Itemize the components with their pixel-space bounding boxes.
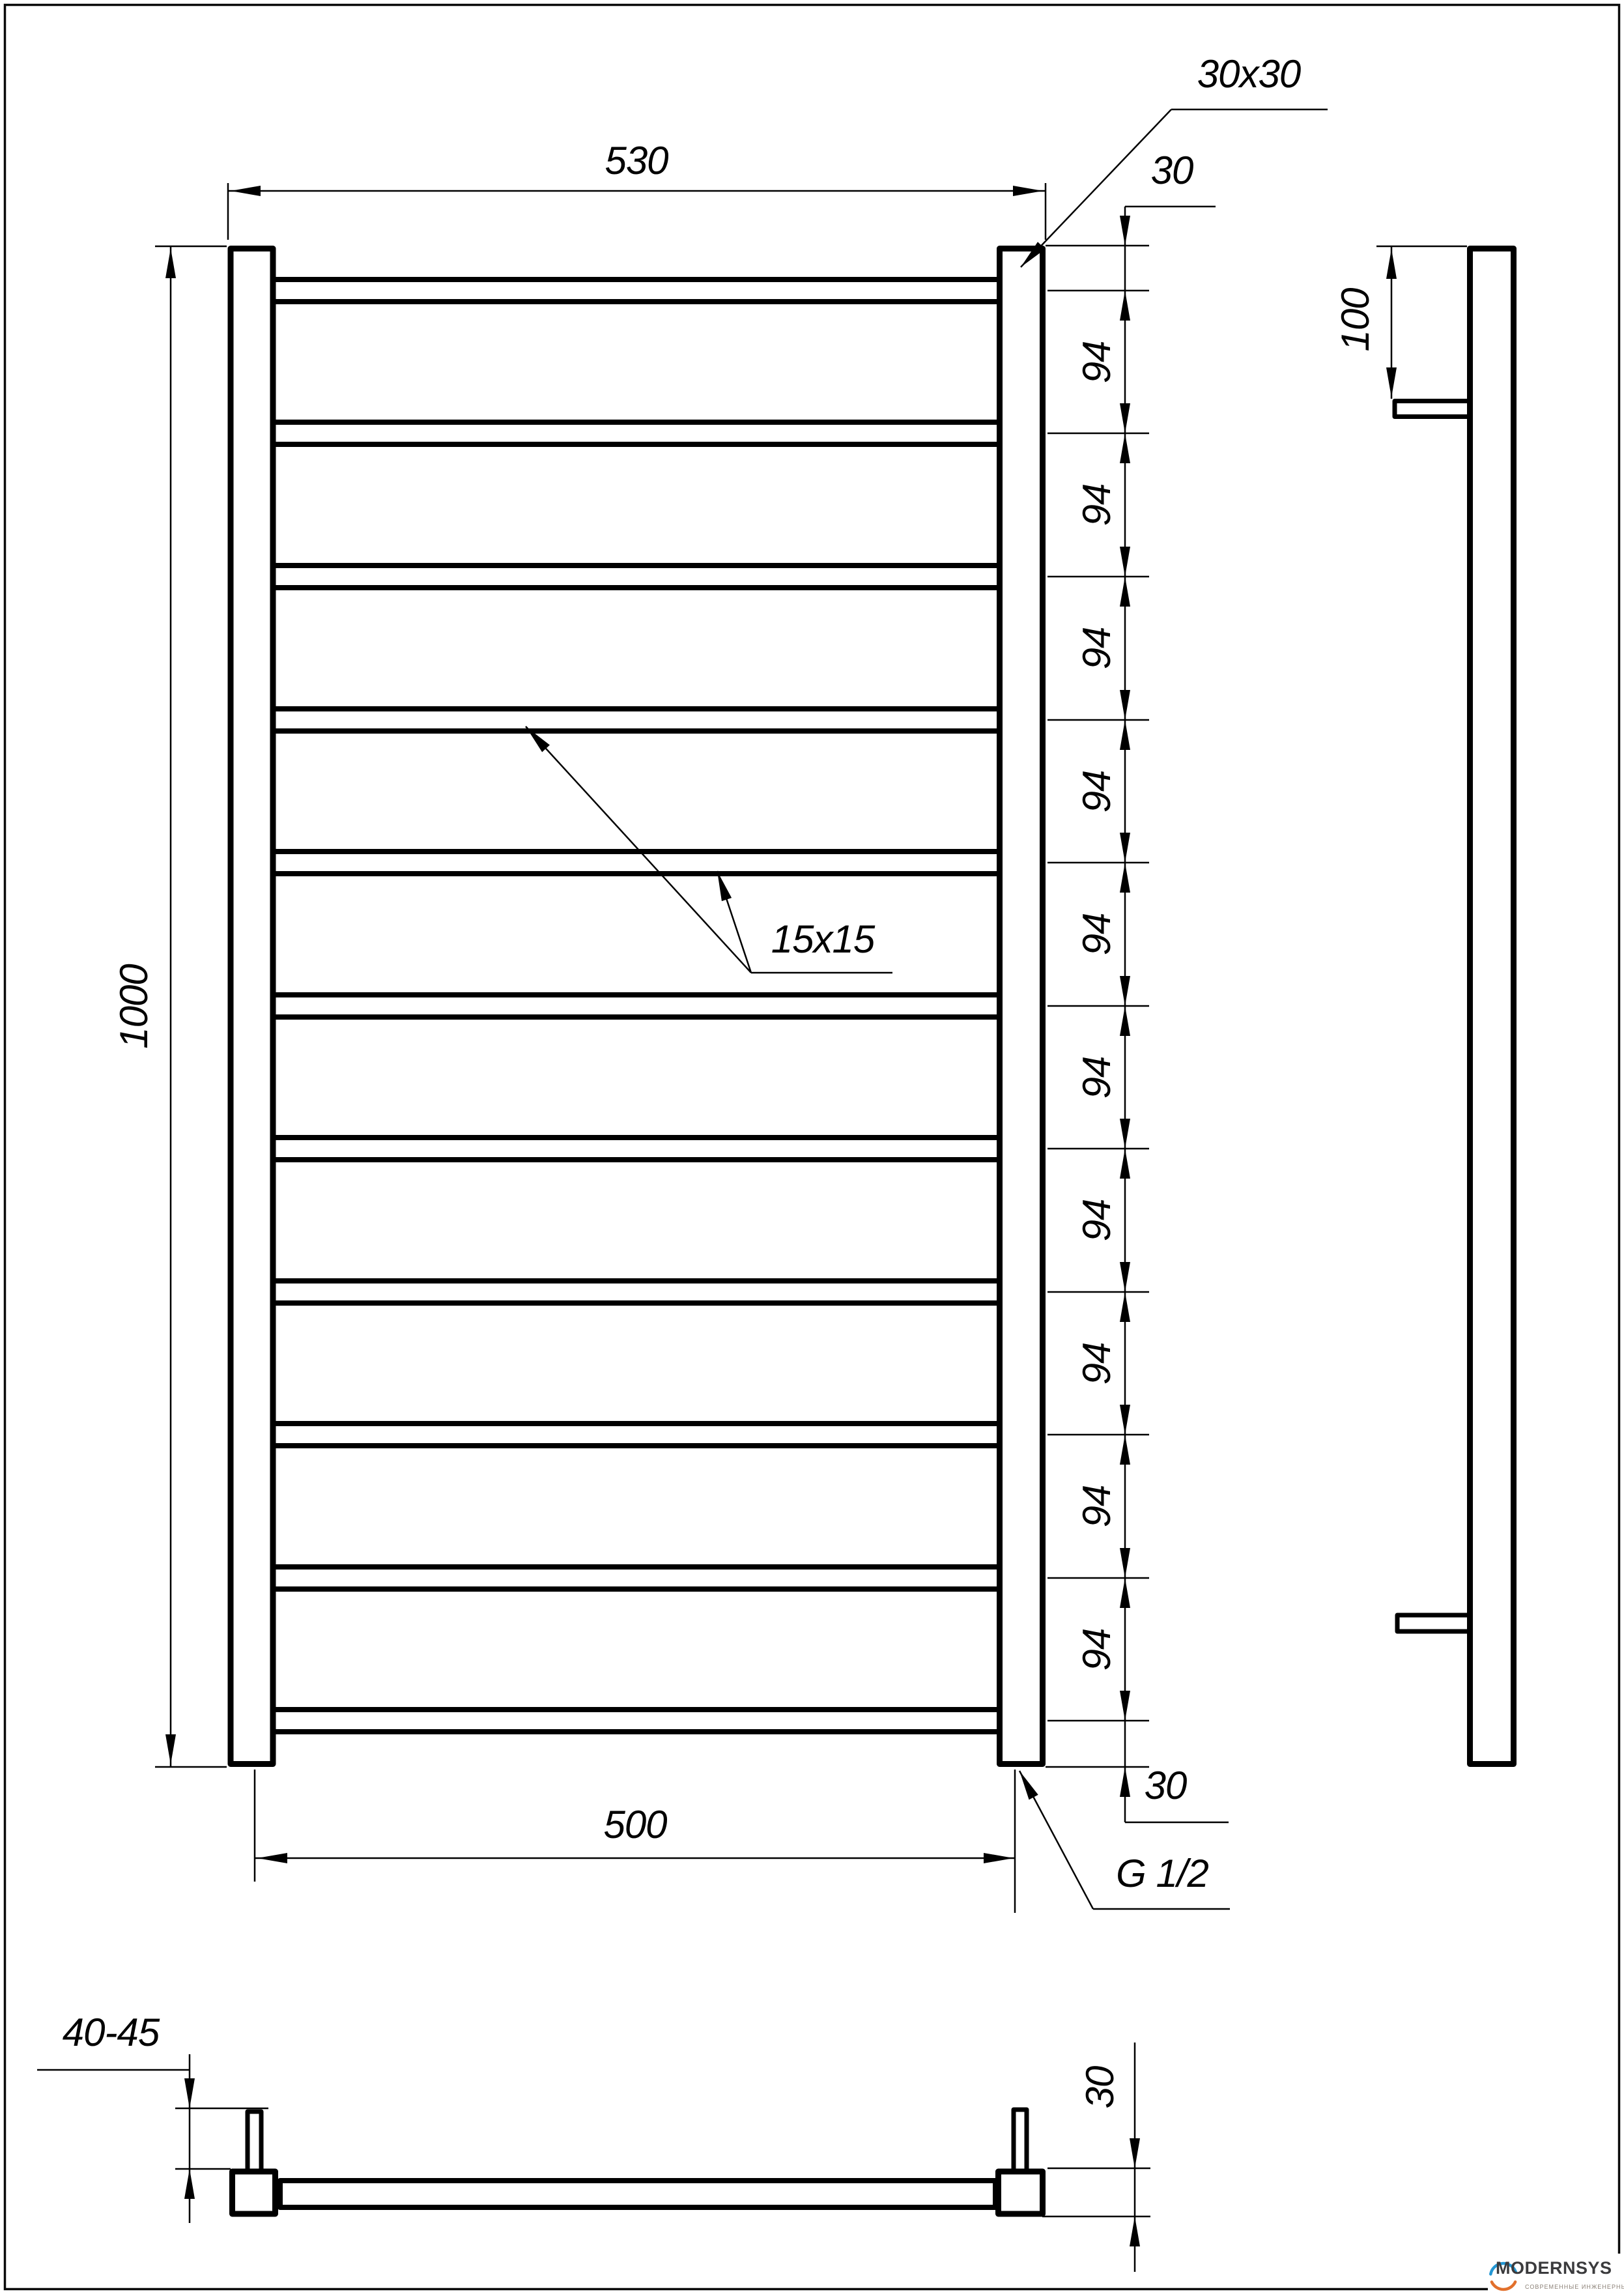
dim-arrow — [1120, 216, 1130, 246]
dim-arrow — [1120, 1691, 1130, 1721]
dim-1000-lines — [155, 246, 227, 1767]
dim-arrow — [1120, 1149, 1130, 1179]
front-view-drawing — [231, 249, 1043, 1764]
dim-top-offset-label: 30 — [1151, 151, 1193, 190]
side-top-bracket — [1395, 401, 1470, 417]
rung — [273, 1710, 1000, 1732]
dim-arrow — [1120, 1578, 1130, 1608]
dim-arrow — [1120, 720, 1130, 750]
dim-bottom-offset-label: 30 — [1145, 1766, 1187, 1805]
rung — [273, 995, 1000, 1017]
dim-wall-clearance-label: 40-45 — [63, 2013, 159, 2052]
dim-arrow — [1386, 249, 1397, 279]
dim-arrow — [1120, 433, 1130, 463]
dim-arrow — [1019, 1771, 1038, 1799]
dim-arrow — [1120, 976, 1130, 1006]
logo-tagline: СОВРЕМЕННЫЕ ИНЖЕНЕРНЫЕ СИСТЕМЫ — [1525, 2284, 1624, 2290]
side-view-drawing — [1395, 249, 1514, 1764]
dim-arrow — [1120, 833, 1130, 863]
dim-arrow — [1120, 1119, 1130, 1149]
side-post — [1470, 249, 1514, 1764]
bottom-view-left-nipple — [248, 2112, 261, 2172]
dim-arrow — [1120, 1767, 1130, 1797]
ann-thread-label: G 1/2 — [1116, 1854, 1208, 1893]
dim-arrow — [1120, 1435, 1130, 1465]
logo-arc-orange-icon — [1492, 2282, 1515, 2289]
dim-top-width-label: 530 — [605, 141, 668, 180]
drawing-page: { "page": { "background": "#ffffff", "li… — [0, 0, 1624, 2294]
rung — [273, 852, 1000, 874]
bottom-view-tube — [280, 2181, 995, 2207]
dim-arrow — [165, 248, 176, 278]
dim-arrow — [1120, 690, 1130, 720]
chain-extension-lines — [1046, 246, 1149, 1767]
dim-rung-spacing-label: 94 — [1077, 1342, 1117, 1384]
dim-arrow — [1120, 547, 1130, 577]
dim-arrow — [1120, 1006, 1130, 1036]
chain-dim-line — [1125, 207, 1229, 1822]
dim-rung-spacing-label: 94 — [1077, 1485, 1117, 1528]
dim-arrow — [1386, 367, 1397, 397]
side-bottom-bracket — [1397, 1615, 1470, 1631]
dim-arrow — [1120, 1262, 1130, 1292]
dim-arrow — [1120, 403, 1130, 433]
rung — [273, 280, 1000, 302]
dim-arrow — [165, 1734, 176, 1764]
right-post — [1000, 249, 1043, 1764]
rungs — [273, 280, 1000, 1732]
dim-arrow — [184, 2078, 195, 2108]
rung — [273, 566, 1000, 588]
dim-arrow — [1120, 1292, 1130, 1322]
dim-bottom-view-depth-label: 30 — [1081, 2067, 1120, 2109]
dim-rung-spacing-label: 94 — [1077, 770, 1117, 812]
left-post — [231, 249, 273, 1764]
dim-arrow — [1120, 577, 1130, 607]
bottom-view-left-block — [233, 2172, 276, 2214]
dim-arrow — [1120, 1405, 1130, 1435]
dim-height-label: 1000 — [115, 964, 154, 1048]
dim-arrow — [1013, 186, 1043, 196]
dim-rung-spacing-label: 94 — [1077, 341, 1117, 383]
dim-arrow — [1130, 2138, 1140, 2168]
dim-bottom-width-label: 500 — [603, 1805, 666, 1844]
modernsys-logo: MODERNSYS СОВРЕМЕННЫЕ ИНЖЕНЕРНЫЕ СИСТЕМЫ — [1488, 2254, 1624, 2294]
dim-arrow — [1130, 2216, 1140, 2246]
rung — [273, 709, 1000, 731]
rung — [273, 1424, 1000, 1446]
dim-arrow — [984, 1853, 1014, 1863]
ann-post-section-label: 30x30 — [1197, 55, 1300, 94]
logo-name: MODERNSYS — [1496, 2259, 1612, 2277]
bottom-view-right-nipple — [1014, 2110, 1027, 2172]
dim-arrow — [1120, 1548, 1130, 1578]
dim-rung-spacing-label: 94 — [1077, 627, 1117, 670]
rung — [273, 1138, 1000, 1160]
rung — [273, 1567, 1000, 1589]
ann-rung-section-label: 15x15 — [771, 920, 874, 959]
dim-arrow — [1120, 291, 1130, 321]
dim-side-bracket-offset-label: 100 — [1336, 288, 1375, 351]
dim-arrow — [231, 186, 261, 196]
rung — [273, 422, 1000, 444]
dim-arrow — [184, 2169, 195, 2199]
dim-530-lines — [228, 183, 1046, 240]
dim-arrow — [1120, 863, 1130, 893]
dim-rung-spacing-label: 94 — [1077, 484, 1117, 526]
drawing-linework — [0, 0, 1624, 2294]
dim-rung-spacing-label: 94 — [1077, 913, 1117, 956]
bottom-view-drawing — [233, 2110, 1043, 2214]
dim-rung-spacing-label: 94 — [1077, 1199, 1117, 1242]
rung — [273, 1281, 1000, 1303]
dimension-arrows — [165, 186, 1397, 2246]
dim-arrow — [257, 1853, 287, 1863]
bottom-view-right-block — [999, 2172, 1043, 2214]
dim-rung-spacing-label: 94 — [1077, 1628, 1117, 1670]
dim-rung-spacing-label: 94 — [1077, 1056, 1117, 1098]
